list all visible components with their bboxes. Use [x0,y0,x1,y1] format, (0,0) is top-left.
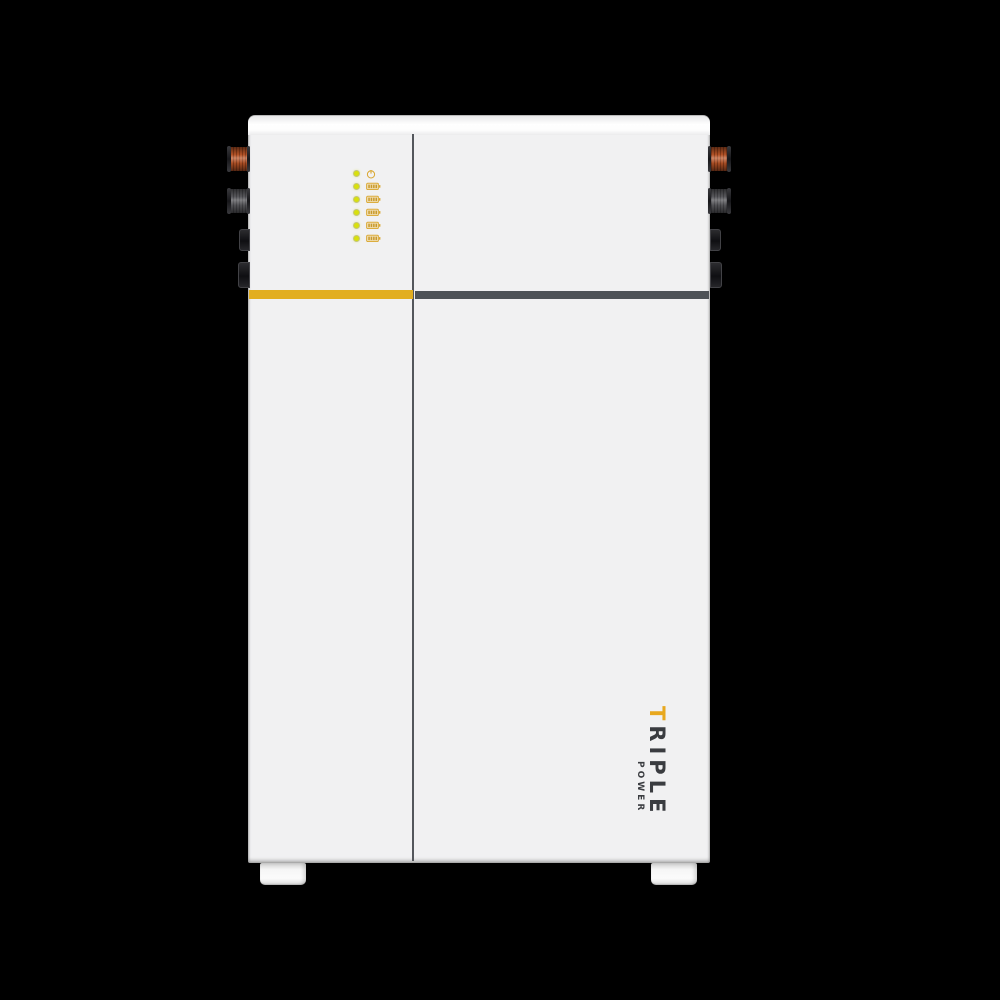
power-led [354,171,359,176]
top-cover-band [248,116,710,135]
led-row-battery-2 [354,193,381,206]
battery-led-3 [354,210,359,215]
led-row-power [354,167,381,180]
led-indicator-panel [354,167,381,245]
battery-icon [366,221,381,230]
battery-icon [366,195,381,204]
right-port-lower [710,262,722,288]
led-row-battery-4 [354,219,381,232]
brand-logo-triple: TRIPLE [648,706,666,817]
right-dc-connector-orange [709,147,730,171]
led-row-battery-5 [354,232,381,245]
left-dc-connector-gray [228,189,249,213]
battery-led-5 [354,236,359,241]
brand-logo-power: POWER [635,761,644,813]
led-row-battery-3 [354,206,381,219]
left-port-upper [239,229,250,251]
battery-led-4 [354,223,359,228]
battery-unit-body: TRIPLE POWER [248,115,710,863]
left-dc-connector-orange [228,147,249,171]
battery-icon [366,234,381,243]
battery-icon [366,208,381,217]
left-port-lower [238,262,250,288]
brand-letters-rest: RIPLE [645,725,669,817]
battery-led-1 [354,184,359,189]
power-icon [366,169,376,179]
accent-stripe-yellow [249,290,413,299]
accent-stripe-dark [415,291,709,299]
right-dc-connector-gray [709,189,730,213]
brand-letter-accent: T [645,706,669,725]
battery-icon [366,182,381,191]
battery-led-2 [354,197,359,202]
foot-right [651,863,697,885]
led-row-battery-1 [354,180,381,193]
front-panel-seam-vertical [412,134,414,861]
product-photo-background: TRIPLE POWER [0,0,1000,1000]
right-port-upper [710,229,721,251]
foot-left [260,863,306,885]
